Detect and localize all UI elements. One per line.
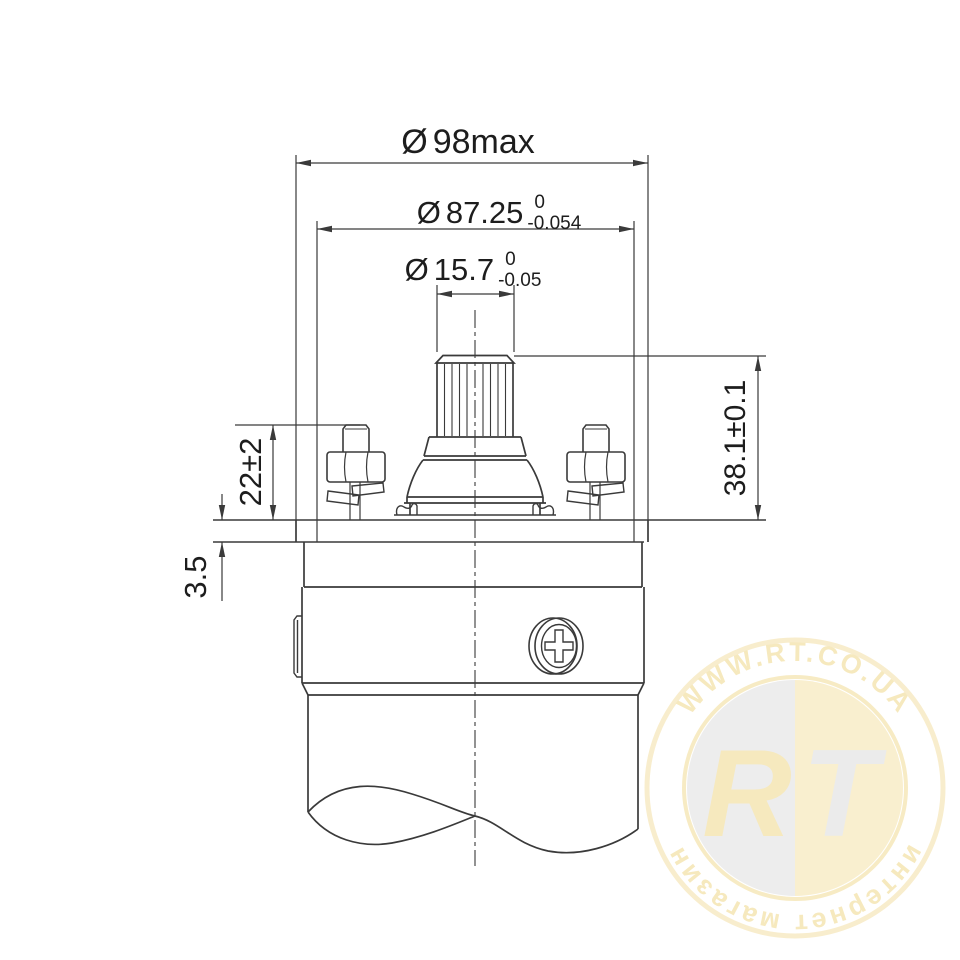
diameter-symbol: Ø [405, 252, 429, 288]
terminal-left [327, 425, 385, 520]
body-can [302, 542, 644, 695]
lower-shaft [308, 695, 638, 853]
terminal-right [567, 425, 625, 520]
phillips-screw-icon [529, 618, 583, 674]
dim-label-flange-thickness: 3.5 [181, 541, 211, 613]
dim-label-shaft-height: 38.1±0.1 [721, 372, 751, 504]
mounting-flange [213, 520, 766, 542]
dim-label-terminal-height: 22±2 [236, 427, 266, 517]
diameter-symbol: Ø [417, 195, 441, 231]
diameter-symbol: Ø [401, 123, 427, 162]
tolerance-stack: 0 -0.05 [498, 249, 541, 292]
dim-label-diameter-body: Ø87.25 0 -0.054 [349, 191, 649, 235]
side-tab [294, 616, 302, 677]
tolerance-stack: 0 -0.054 [527, 192, 581, 235]
dim-label-diameter-max: Ø98max [338, 124, 598, 160]
dim-label-diameter-shaft: Ø15.7 0 -0.05 [348, 248, 598, 292]
drawing-canvas: Ø98max Ø87.25 0 -0.054 Ø15.7 0 -0.05 38.… [0, 0, 960, 960]
